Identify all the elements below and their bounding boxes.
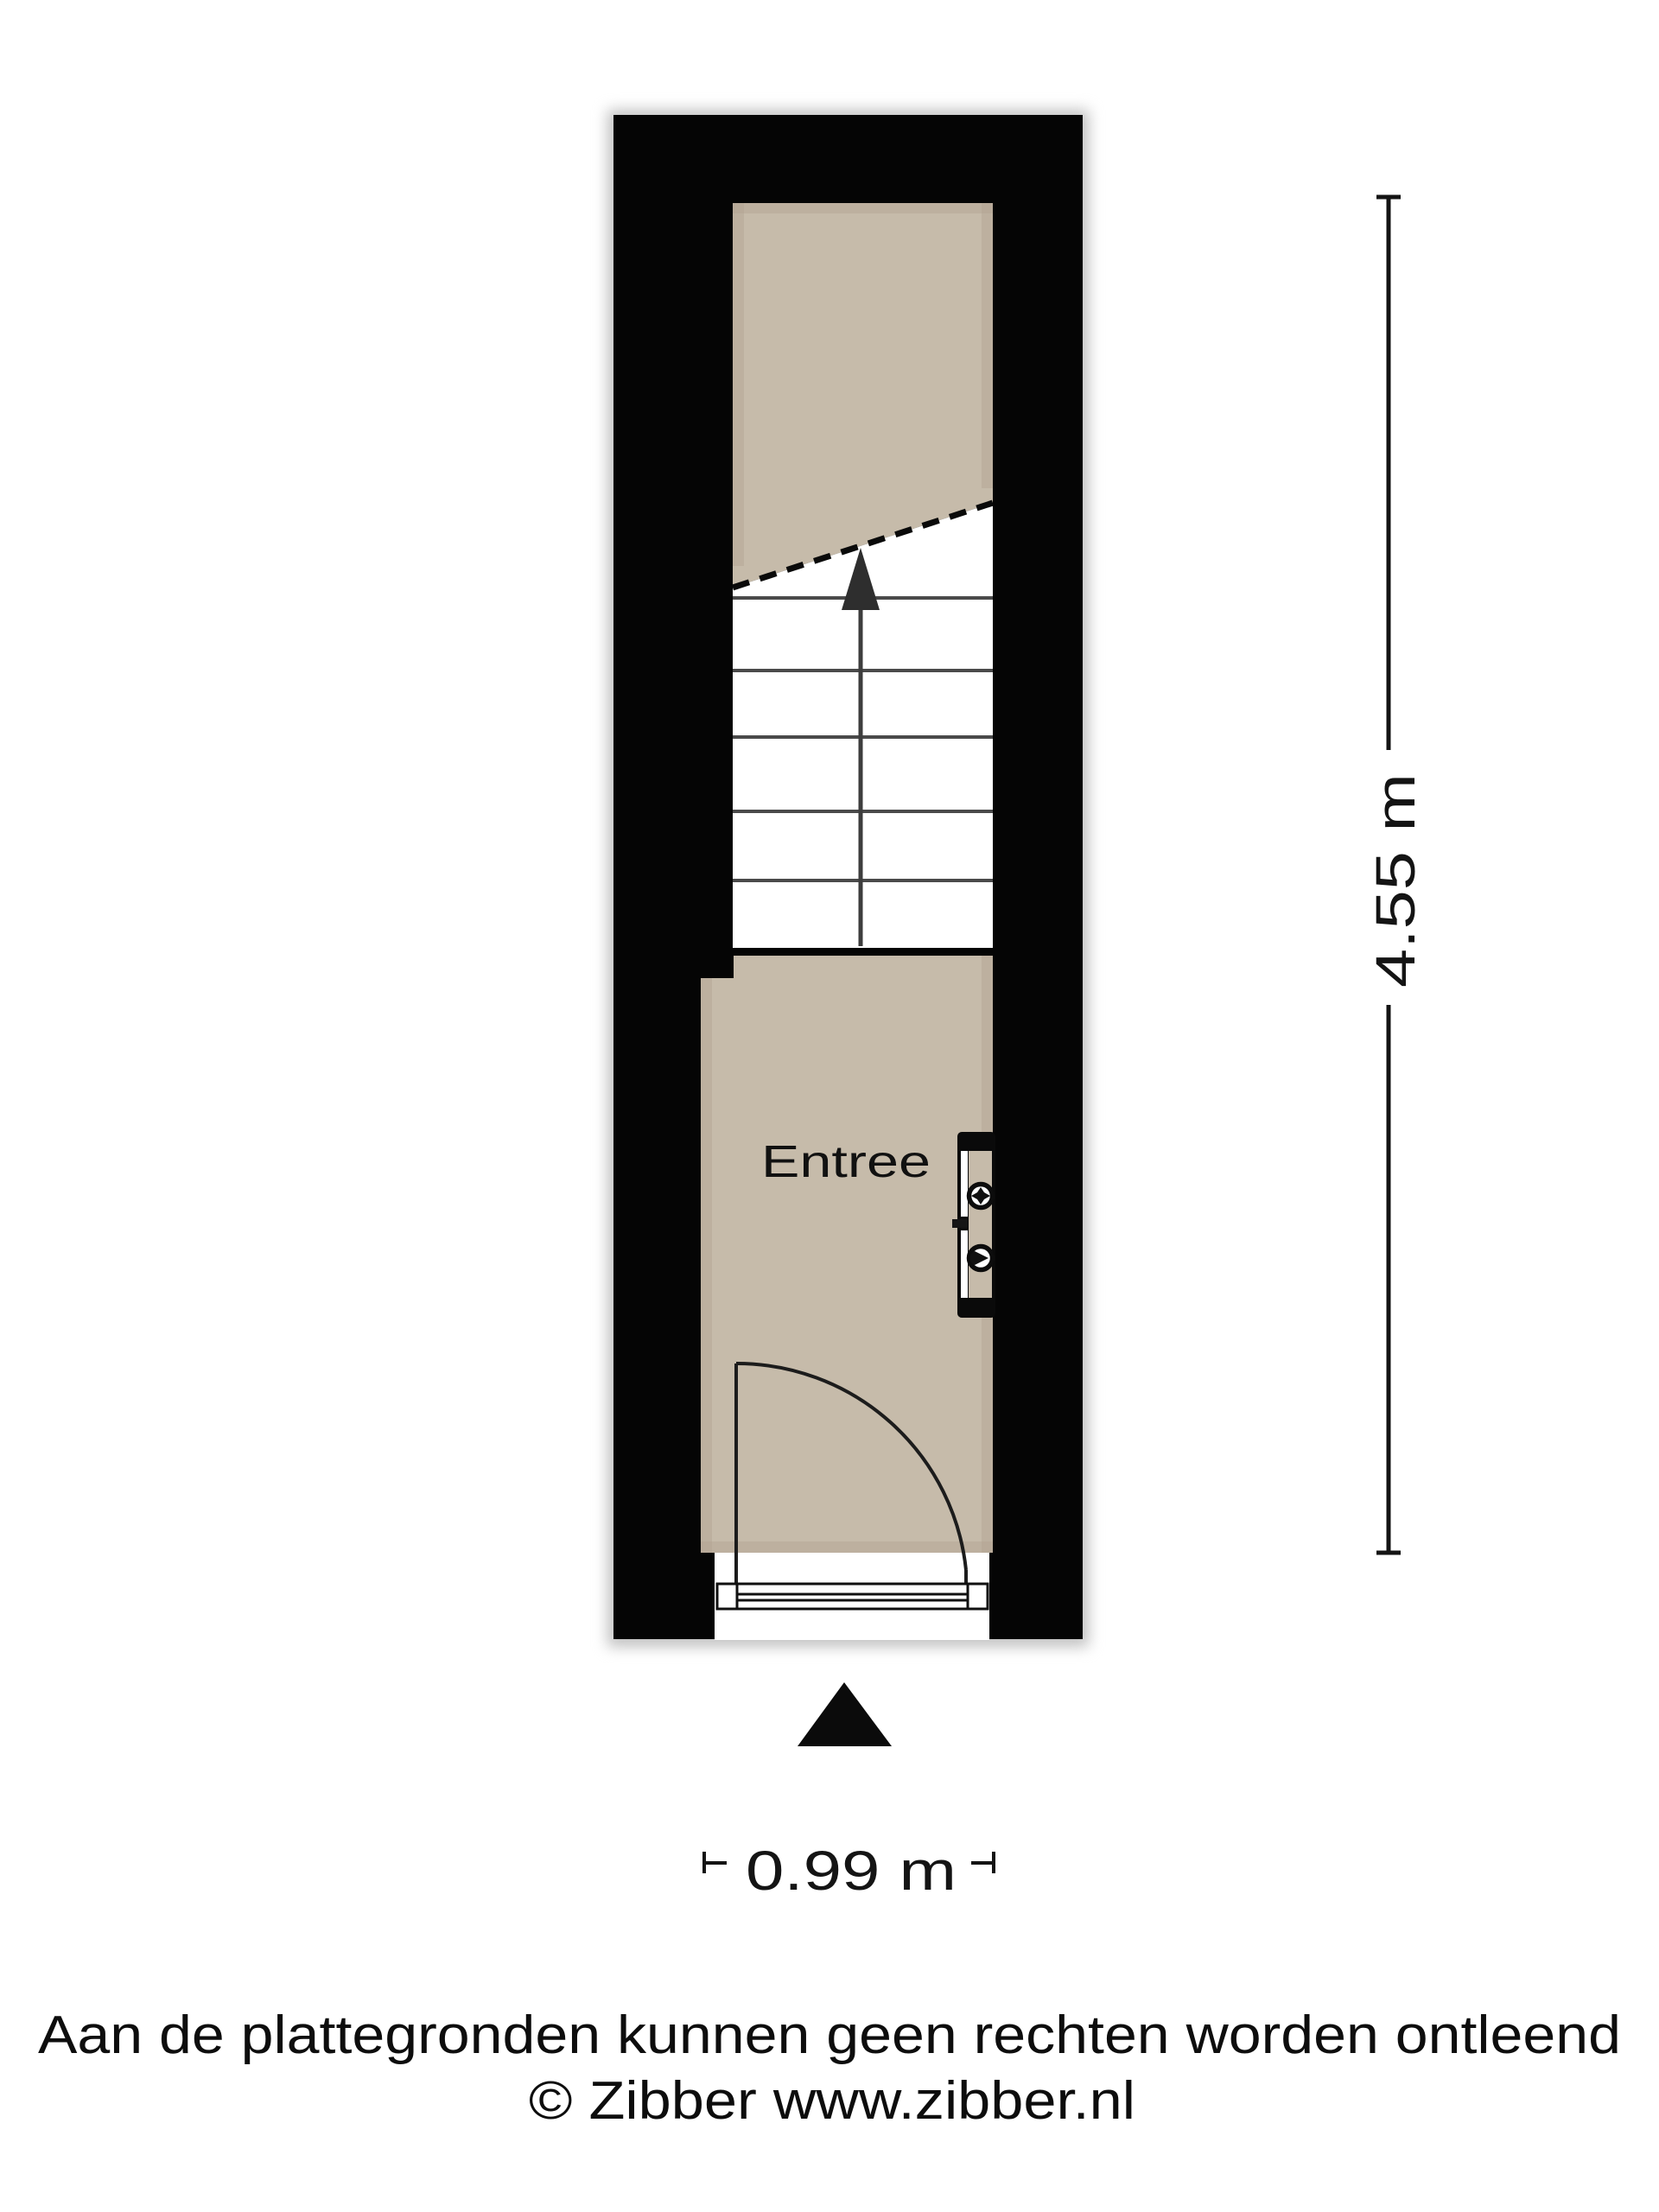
floor-shading [733, 203, 744, 566]
floor-shading [701, 1541, 993, 1553]
copyright-text: © Zibber www.zibber.nl [529, 2071, 1135, 2131]
meter-box-icon [952, 1132, 995, 1318]
room-label-entree: Entree [761, 1137, 931, 1187]
dimension-horizontal: 0.99 m [704, 1840, 994, 1902]
wall-step [701, 948, 734, 978]
floorplan-page: Entree [0, 0, 1659, 2212]
dimension-vertical: 4.55 m [1364, 197, 1427, 1553]
dimension-vertical-label: 4.55 m [1364, 773, 1427, 988]
entree-room-floor [701, 956, 993, 1553]
door-threshold [717, 1584, 988, 1609]
floor-shading [701, 956, 712, 1553]
floor-shading [733, 203, 993, 213]
dimension-horizontal-label: 0.99 m [746, 1840, 957, 1902]
entrance-arrow-icon [798, 1682, 892, 1746]
disclaimer-text: Aan de plattegronden kunnen geen rechten… [38, 2005, 1621, 2065]
floor-shading [982, 203, 993, 488]
floorplan-canvas: Entree [0, 0, 1659, 2212]
